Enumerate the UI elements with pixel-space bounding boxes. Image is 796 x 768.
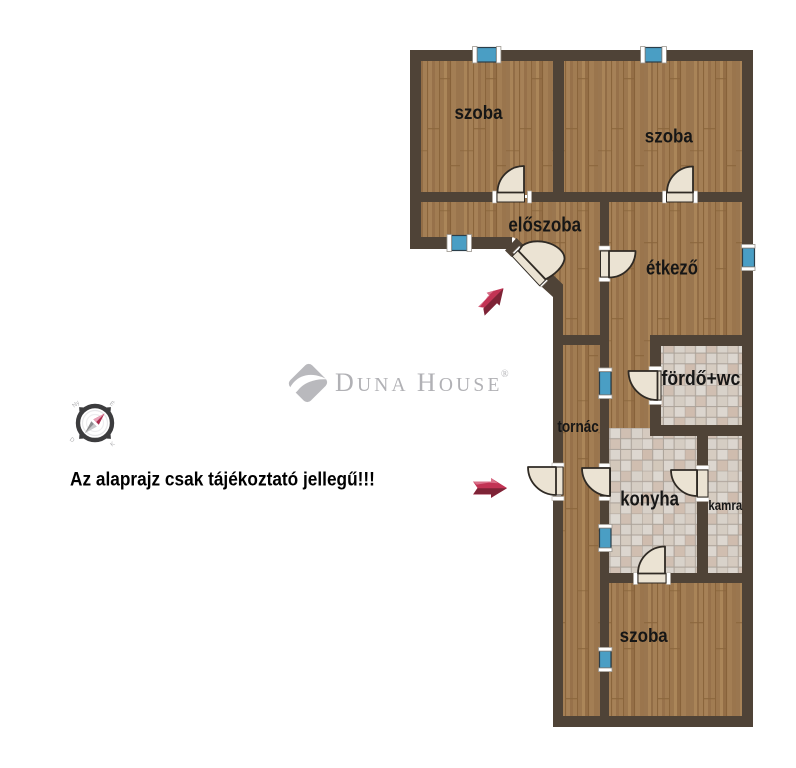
svg-text:szoba: szoba	[645, 124, 694, 146]
svg-text:előszoba: előszoba	[508, 213, 581, 236]
svg-text:tornác: tornác	[557, 418, 599, 437]
svg-text:konyha: konyha	[620, 487, 679, 510]
svg-text:fördő+wc: fördő+wc	[662, 367, 741, 389]
svg-text:étkező: étkező	[646, 256, 698, 279]
svg-text:szoba: szoba	[454, 101, 503, 123]
svg-text:®: ®	[501, 369, 509, 380]
svg-text:szoba: szoba	[620, 624, 669, 646]
svg-text:Az alaprajz csak tájékoztató j: Az alaprajz csak tájékoztató jellegű!!!	[70, 467, 375, 489]
svg-text:kamra: kamra	[708, 498, 743, 513]
